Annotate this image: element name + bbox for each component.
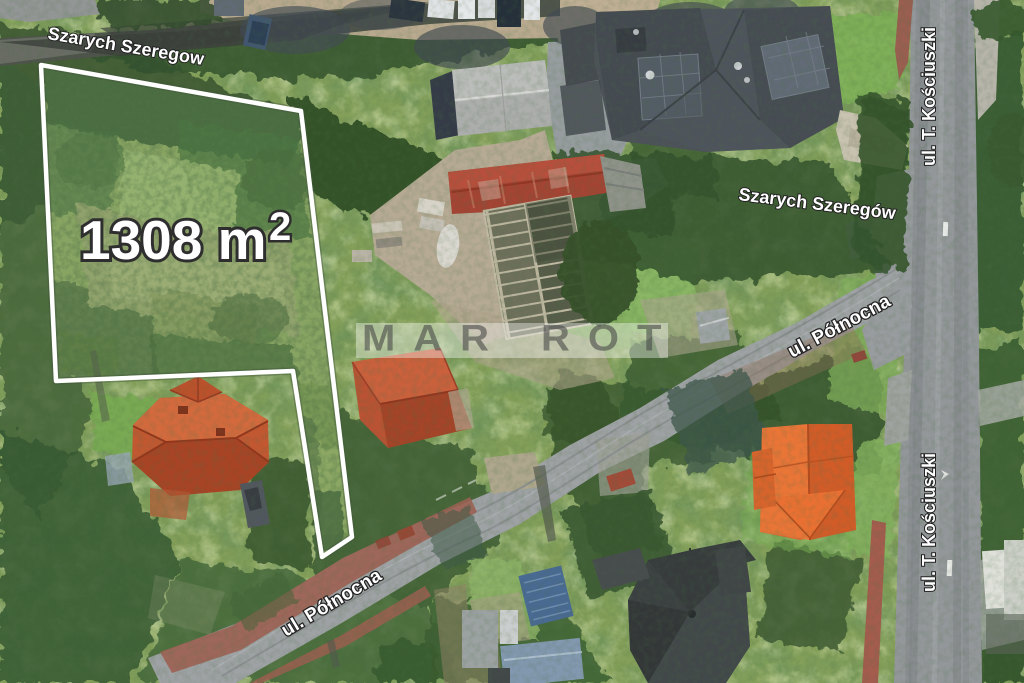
svg-text:ul. T. Kościuszki: ul. T. Kościuszki [919,453,939,592]
svg-text:MAR: MAR [362,318,507,359]
svg-text:1308 m: 1308 m [80,209,267,271]
svg-text:2: 2 [269,205,291,249]
svg-text:ul. T. Kościuszki: ul. T. Kościuszki [919,27,939,166]
svg-text:ROT: ROT [541,318,679,359]
